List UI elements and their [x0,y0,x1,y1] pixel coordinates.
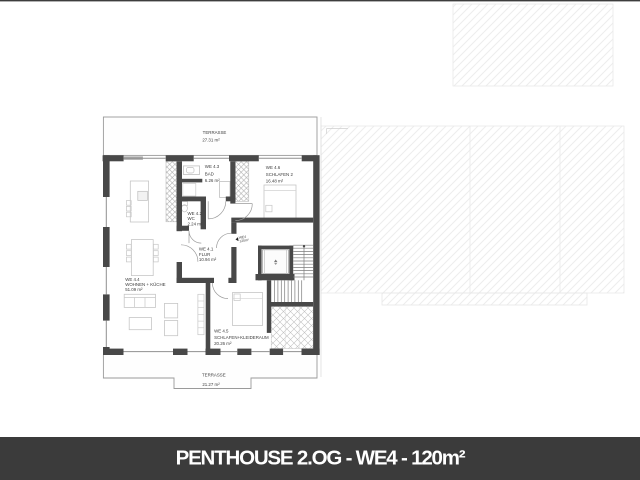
svg-text:WE 4.1: WE 4.1 [199,247,214,252]
svg-text:SCHLAFEN 2: SCHLAFEN 2 [266,172,294,177]
svg-text:TERRASSE: TERRASSE [202,373,226,378]
svg-text:PENTHOUSE 2.OG - WE4 - 120m²: PENTHOUSE 2.OG - WE4 - 120m² [176,447,466,470]
svg-text:WE 4.5: WE 4.5 [214,329,229,334]
svg-text:FLUR: FLUR [199,252,210,257]
svg-text:SCHLAFEN+KLEIDERAUM: SCHLAFEN+KLEIDERAUM [214,335,269,340]
svg-text:2.24 m²: 2.24 m² [188,221,203,226]
svg-text:16.48 m²: 16.48 m² [266,178,284,183]
svg-text:BAD: BAD [205,172,214,177]
svg-text:6.26 m²: 6.26 m² [205,178,220,183]
svg-text:27.31 m²: 27.31 m² [202,138,220,143]
svg-text:WE 4.3: WE 4.3 [205,164,220,169]
svg-text:TERRASSE: TERRASSE [203,130,227,135]
svg-text:21.27 m²: 21.27 m² [202,382,220,387]
svg-text:20.26 m²: 20.26 m² [214,341,232,346]
svg-text:WE 4.6: WE 4.6 [266,165,281,170]
svg-text:10.94 m²: 10.94 m² [199,257,217,262]
svg-text:51.09 m²: 51.09 m² [125,287,143,292]
